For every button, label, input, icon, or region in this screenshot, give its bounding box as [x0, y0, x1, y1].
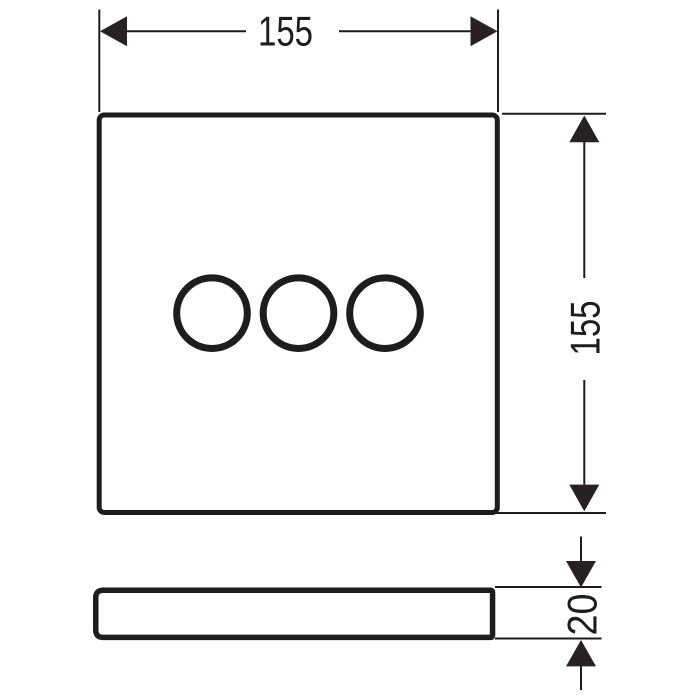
svg-text:155: 155: [258, 7, 313, 54]
svg-text:155: 155: [561, 301, 608, 356]
svg-text:20: 20: [559, 594, 606, 636]
